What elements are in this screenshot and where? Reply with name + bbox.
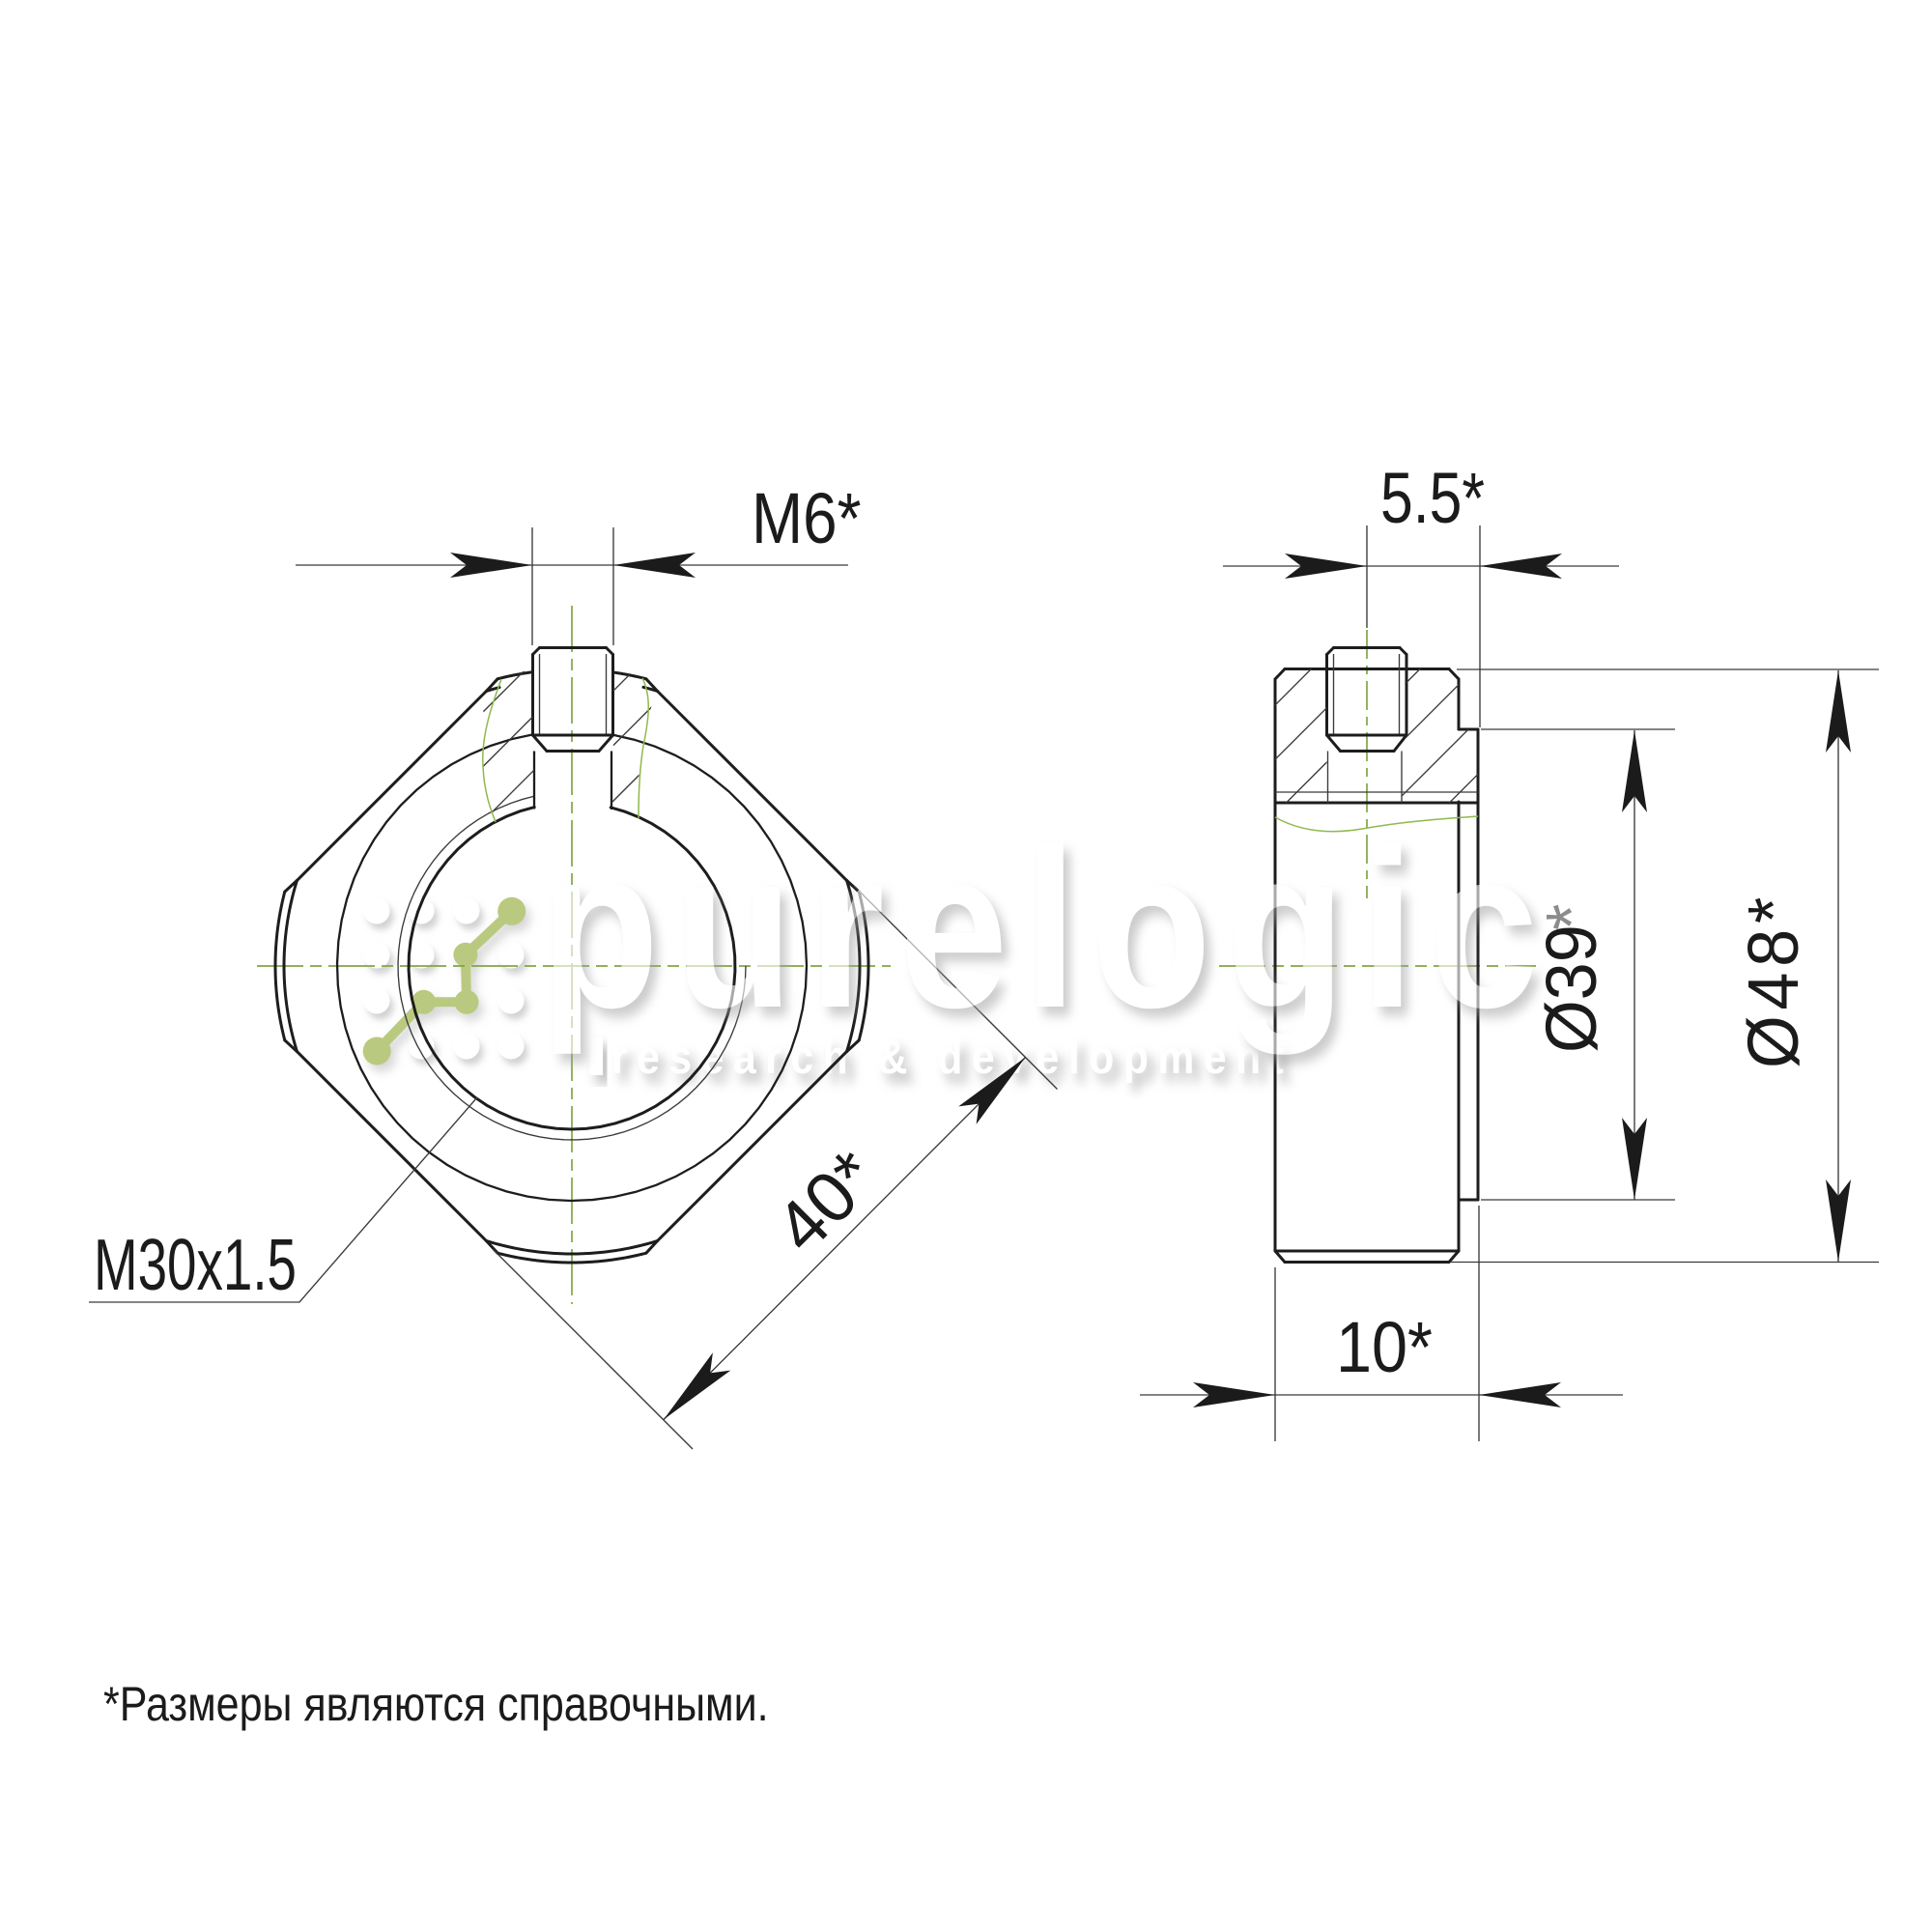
svg-text:*Размеры являются справочными.: *Размеры являются справочными. — [103, 1677, 769, 1731]
svg-text:*: * — [1532, 904, 1611, 930]
svg-text:purelogic: purelogic — [540, 803, 1553, 1056]
svg-text:Ø39: Ø39 — [1532, 924, 1611, 1053]
svg-text:10*: 10* — [1336, 1307, 1433, 1387]
svg-text:Ø48*: Ø48* — [1734, 892, 1813, 1068]
svg-text:M30x1.5: M30x1.5 — [94, 1225, 297, 1305]
svg-text:M6*: M6* — [752, 478, 861, 559]
svg-text:5.5*: 5.5* — [1380, 459, 1485, 538]
